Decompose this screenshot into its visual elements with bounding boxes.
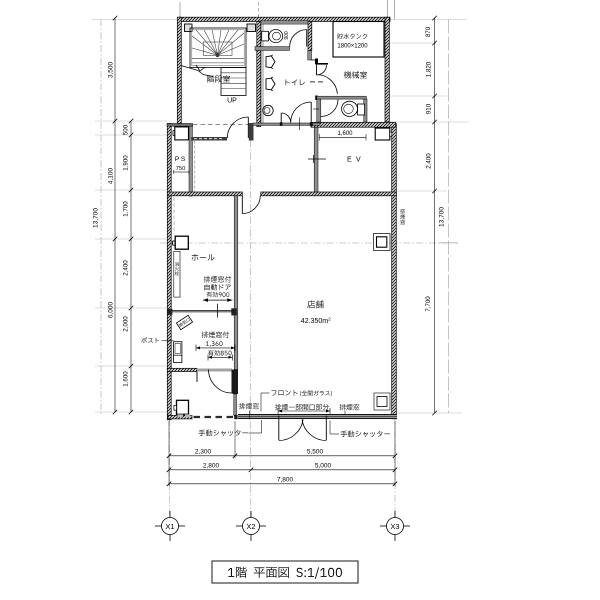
svg-text:900: 900 — [284, 31, 290, 40]
svg-text:1,900: 1,900 — [123, 155, 130, 171]
svg-text:P S: P S — [175, 156, 186, 163]
svg-text:750: 750 — [176, 166, 186, 172]
svg-text:X3: X3 — [390, 522, 399, 531]
svg-text:6,000: 6,000 — [108, 301, 115, 318]
svg-text:870: 870 — [425, 26, 432, 37]
svg-text:5,000: 5,000 — [315, 462, 332, 469]
svg-text:1,600: 1,600 — [337, 131, 353, 137]
svg-text:2,800: 2,800 — [203, 462, 220, 469]
svg-text:5,500: 5,500 — [307, 448, 324, 455]
svg-text:E V: E V — [347, 157, 362, 164]
svg-text:2,400: 2,400 — [123, 260, 130, 276]
svg-text:1800×1200: 1800×1200 — [337, 44, 368, 50]
svg-text:13,700: 13,700 — [439, 207, 446, 227]
svg-text:X1: X1 — [165, 522, 174, 531]
svg-text:7,800: 7,800 — [277, 476, 294, 483]
svg-text:910: 910 — [426, 103, 433, 114]
svg-text:4,100: 4,100 — [108, 167, 115, 184]
svg-text:1,820: 1,820 — [426, 61, 433, 77]
svg-text:42.350m: 42.350m — [301, 318, 328, 325]
svg-text:7,700: 7,700 — [425, 296, 432, 312]
svg-text:UP: UP — [227, 97, 237, 104]
svg-text:1,700: 1,700 — [123, 201, 130, 217]
svg-text:500: 500 — [123, 124, 130, 135]
svg-text:1,600: 1,600 — [123, 371, 130, 387]
svg-text:2,000: 2,000 — [123, 316, 130, 332]
svg-text:X2: X2 — [246, 522, 255, 531]
svg-text:2,400: 2,400 — [426, 153, 433, 169]
svg-text:2,300: 2,300 — [195, 448, 212, 455]
svg-text:3,500: 3,500 — [108, 61, 115, 78]
svg-text:13,700: 13,700 — [93, 208, 100, 228]
